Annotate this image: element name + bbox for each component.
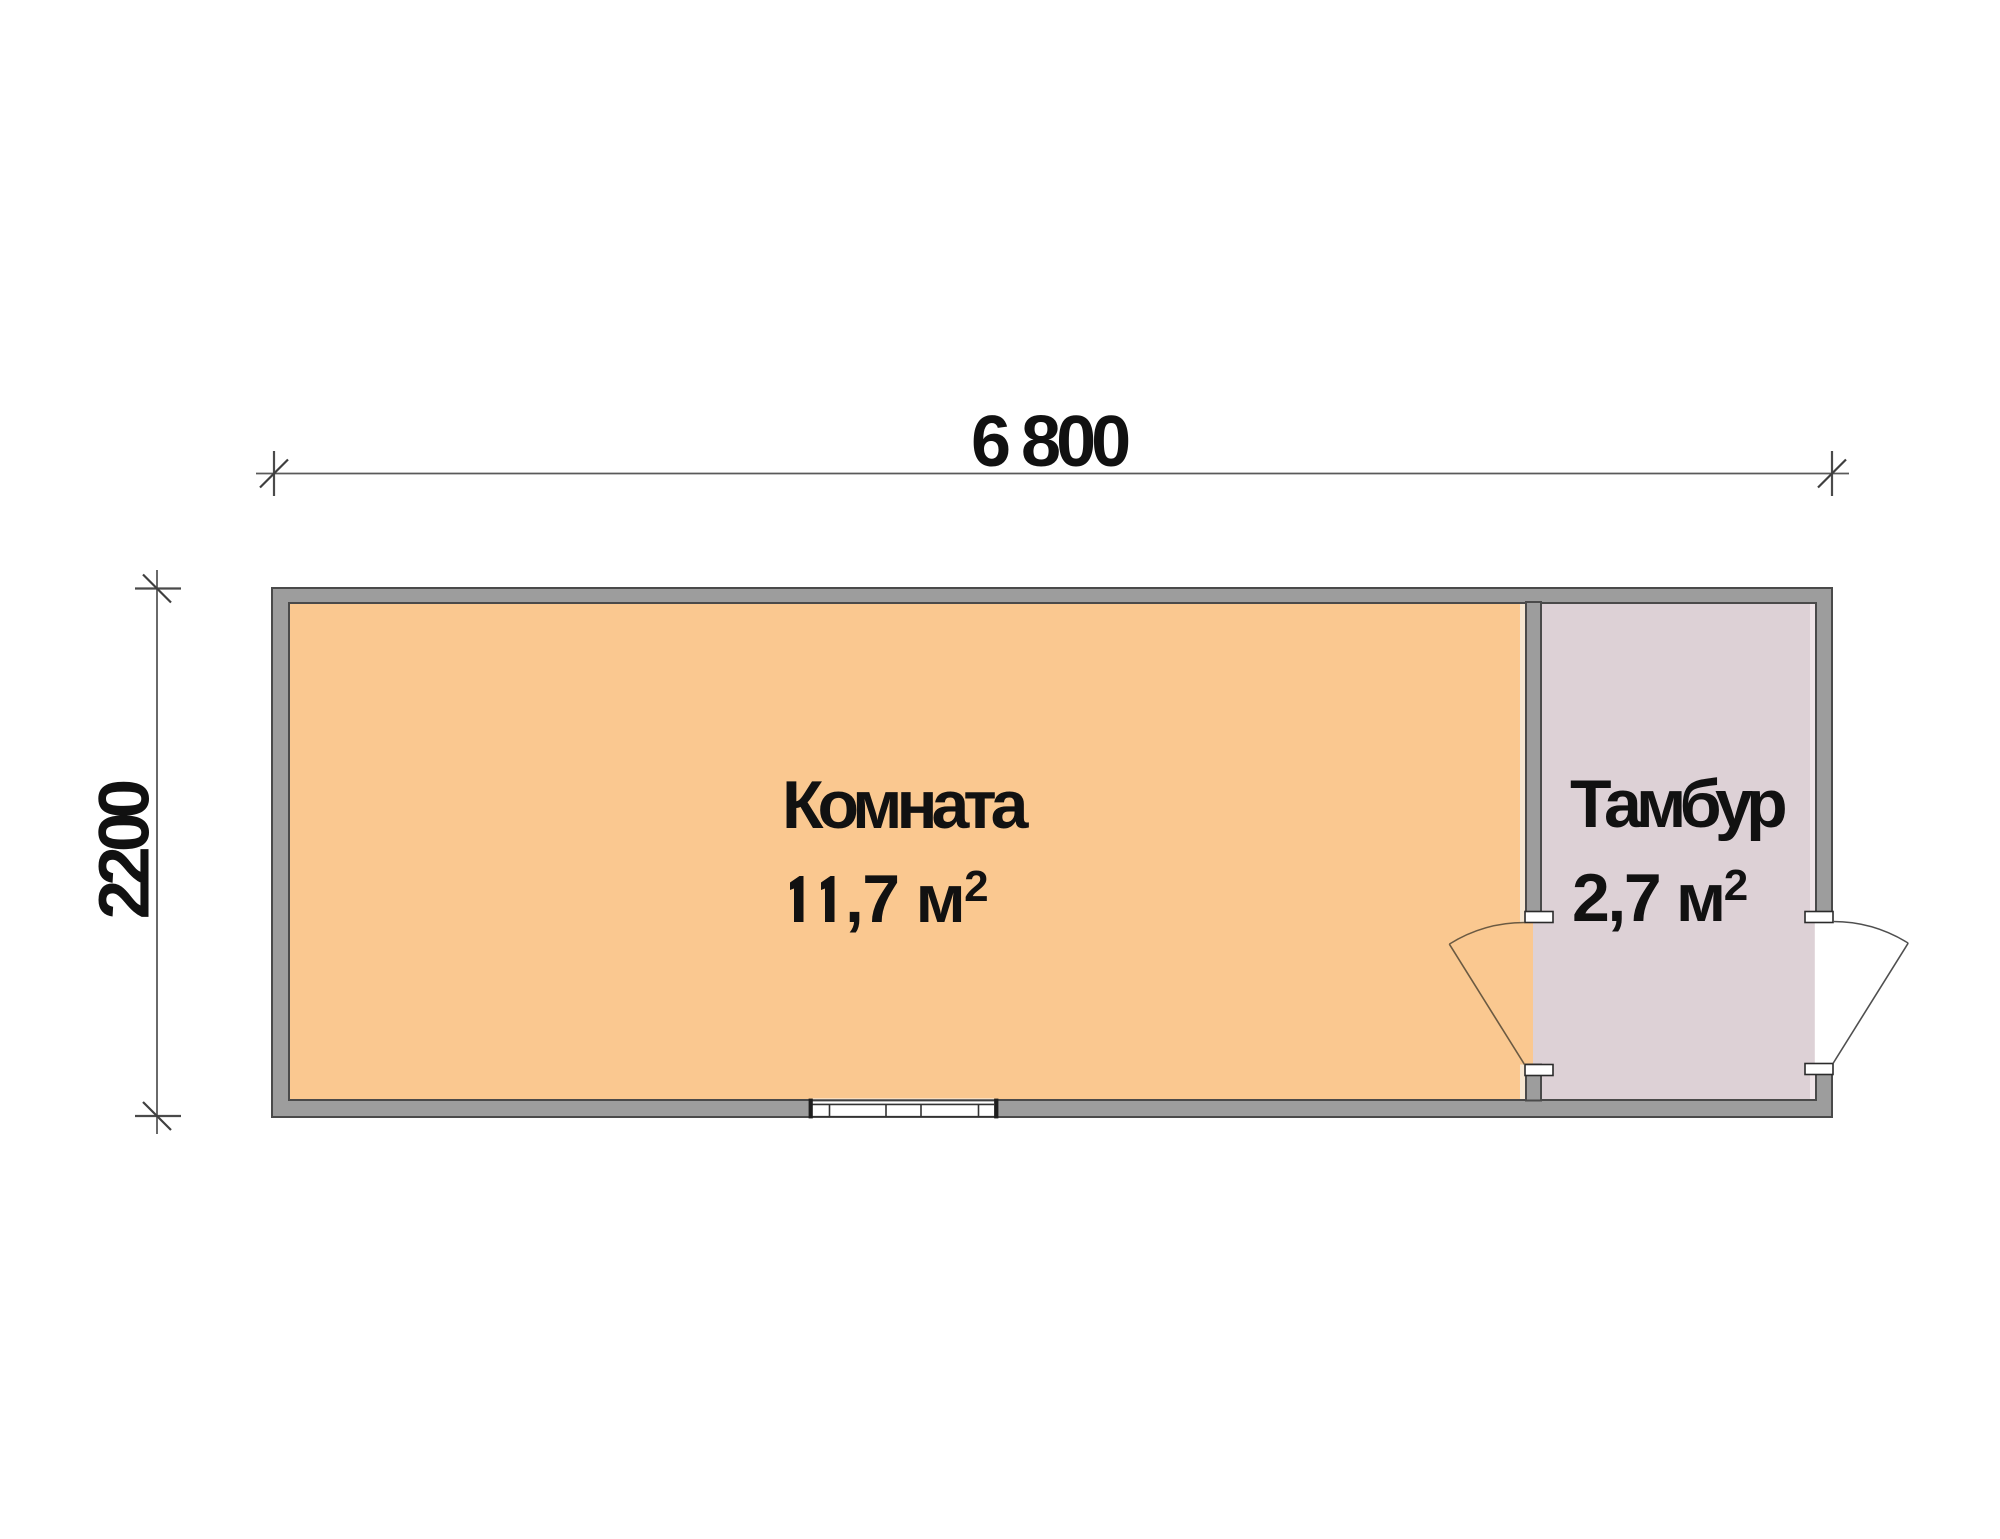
svg-text:2200: 2200 (86, 781, 165, 919)
svg-text:Тамбур: Тамбур (1570, 766, 1785, 842)
svg-text:6 800: 6 800 (971, 402, 1129, 482)
svg-text:Комната: Комната (782, 767, 1030, 843)
svg-text:2,7 м2: 2,7 м2 (1572, 860, 1747, 936)
